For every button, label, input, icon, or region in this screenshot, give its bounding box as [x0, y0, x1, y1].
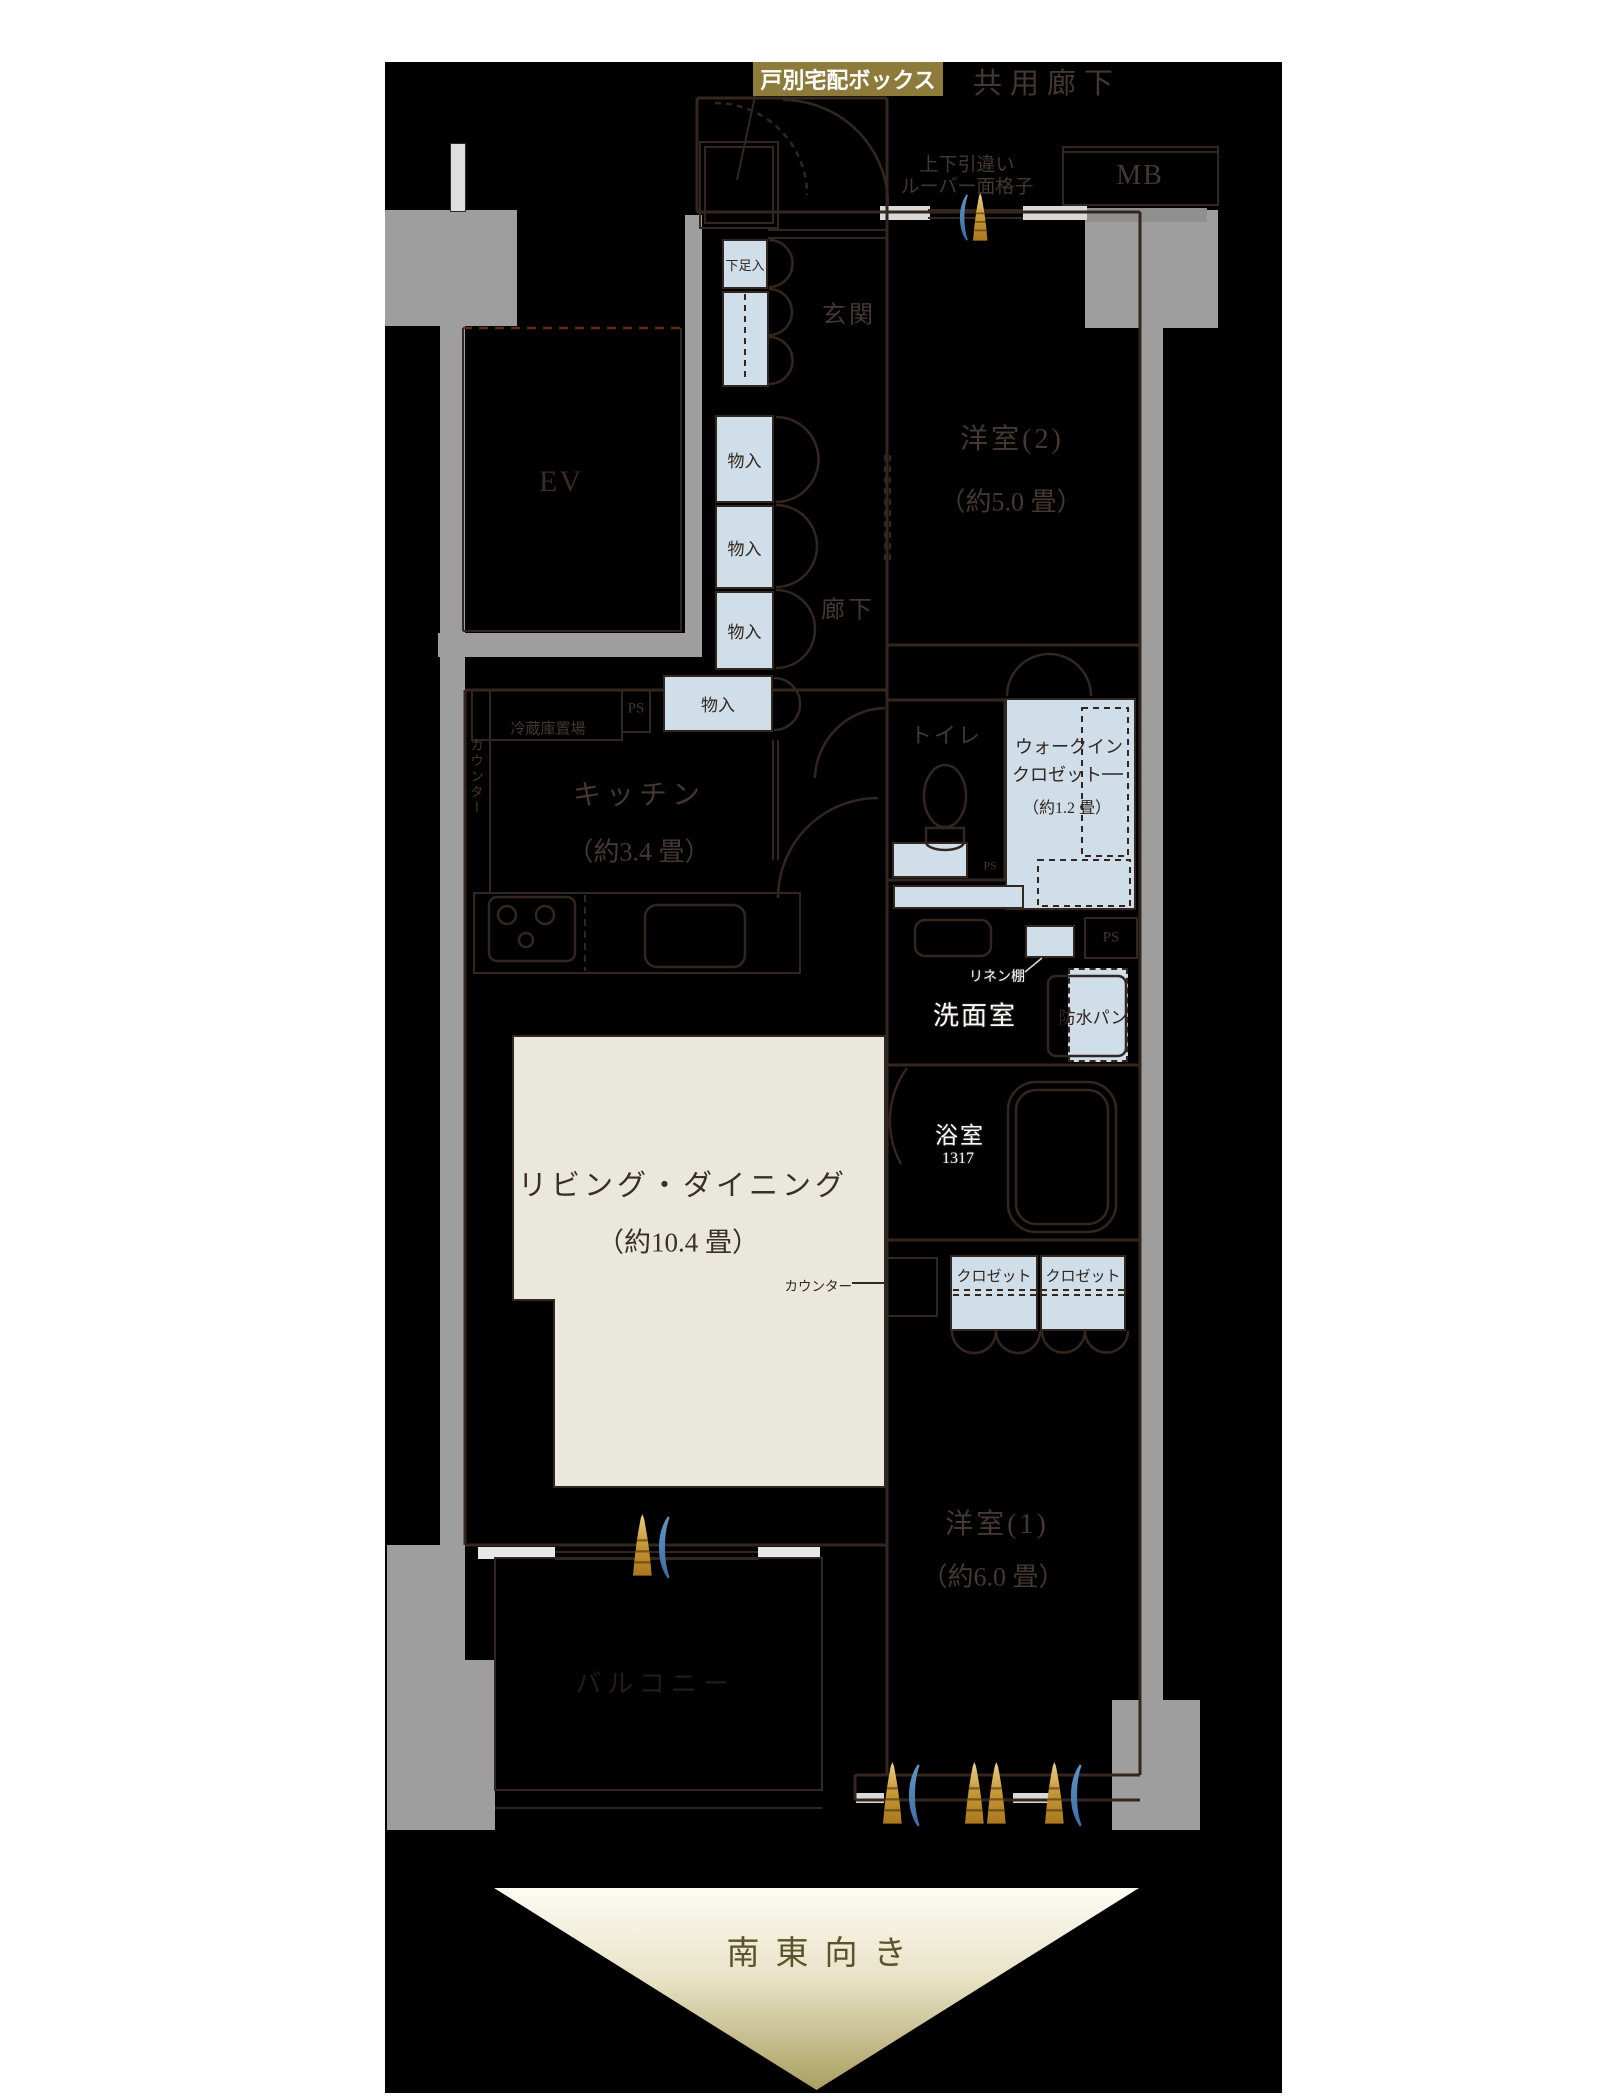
washroom-door-arc	[778, 798, 878, 898]
delivery-door-arc	[715, 103, 807, 195]
corridor-label: 廊下	[821, 590, 875, 625]
toilet-door-arc	[815, 708, 885, 778]
linen-shelf-label: リネン棚	[969, 966, 1025, 986]
entry-door-arc	[783, 100, 888, 205]
pipe-space-label-kitchen: PS	[628, 701, 645, 718]
delivery-box-tag: 戸別宅配ボックス	[753, 62, 943, 96]
wic-size-label: （約1.2 畳）	[1023, 794, 1111, 818]
wic-label-line1: ウォークイン	[1015, 733, 1123, 759]
toilet-icon	[924, 765, 966, 827]
kitchen-size-label: （約3.4 畳）	[567, 832, 710, 869]
wic-label-line2: クロゼット	[1012, 761, 1102, 787]
wic-hanger-rod-low	[1038, 860, 1130, 906]
waterproof-pan-label: 防水パン	[1059, 1004, 1128, 1029]
kitchen-counter-label: カウンター	[465, 738, 485, 816]
bathroom-label: 浴室	[935, 1116, 985, 1150]
bedroom1-size-label: （約6.0 畳）	[921, 1557, 1064, 1594]
fridge-space-label: 冷蔵庫置場	[510, 718, 585, 739]
bath-door-arc	[890, 1068, 907, 1164]
living-label: リビング・ダイニング	[518, 1162, 848, 1204]
bedroom2-size-label: （約5.0 畳）	[939, 482, 1082, 519]
pipe-space-small-label: PS	[983, 859, 996, 874]
plan-linework	[385, 62, 1282, 2093]
entrance-label: 玄関	[822, 295, 876, 330]
delivery-box-tag-label: 戸別宅配ボックス	[760, 63, 935, 95]
washbasin-icon	[915, 920, 991, 956]
washroom-label: 洗面室	[933, 996, 1017, 1033]
living-counter-label: カウンター	[745, 1275, 852, 1295]
living-size-label: （約10.4 畳）	[597, 1221, 759, 1260]
common-corridor-label: 共用廊下	[973, 60, 1121, 102]
floor-plan-page: 下足入 物入 物入 物入 物入 クロゼット クロゼット	[0, 0, 1600, 2100]
pipe-space-label-toilet: PS	[1103, 930, 1120, 947]
bedroom2-label: 洋室(2)	[960, 417, 1064, 457]
toilet-label: トイレ	[910, 718, 982, 750]
linen-leader-line	[1025, 958, 1042, 972]
bathtub-icon	[1008, 1082, 1116, 1232]
louver-label-line2: ルーバー面格子	[901, 172, 1034, 199]
bedroom1-label: 洋室(1)	[945, 1502, 1049, 1542]
bathroom-size-label: 1317	[942, 1150, 974, 1168]
balcony-label: バルコニー	[575, 1664, 734, 1701]
floor-plan-canvas: 下足入 物入 物入 物入 物入 クロゼット クロゼット	[385, 62, 1282, 2093]
elevator-label: EV	[539, 465, 583, 499]
meter-box-label: MB	[1116, 160, 1164, 192]
unit-walls	[465, 98, 1140, 1800]
kitchen-label: キッチン	[573, 773, 705, 813]
sink-icon	[645, 905, 745, 967]
